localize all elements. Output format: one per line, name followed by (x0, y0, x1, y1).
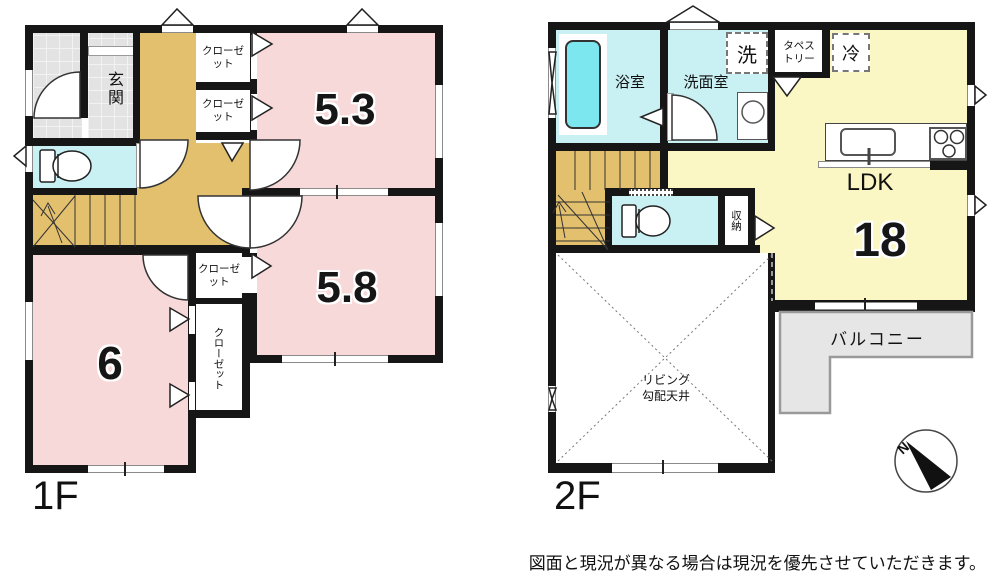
window-shutter-icon (549, 52, 556, 83)
closet-door-icon (252, 32, 272, 56)
room-5-3-size: 5.3 (280, 78, 410, 142)
tapestry-label: タペストリー (780, 34, 818, 72)
washroom-door-arc (672, 95, 717, 140)
storage-door-icon (755, 216, 774, 240)
stove-burners (935, 131, 964, 158)
ldk-size: 18 (845, 212, 915, 268)
toilet-door-arc (140, 140, 188, 188)
window-shutter-icon (975, 86, 986, 104)
void-ceiling-marks (558, 255, 772, 461)
closet-door-icon (252, 254, 271, 278)
sink-bowl (742, 101, 764, 123)
floor-label-2f: 2F (554, 474, 601, 519)
entrance-door-arc (34, 72, 80, 118)
washroom-label: 洗面室 (670, 70, 742, 92)
compass: N (894, 430, 957, 492)
storage-label: 収納 (726, 198, 747, 243)
tapestry-door-icon (773, 77, 801, 96)
entrance-label: 玄関 (98, 52, 128, 126)
ldk-label: LDK (830, 170, 910, 196)
closet-label: クローゼット (198, 93, 248, 129)
roof-vents (162, 6, 719, 25)
window-shutter-icon (549, 399, 556, 410)
window-shutter-icon (549, 388, 556, 399)
room58-door-arc (250, 196, 302, 248)
balcony-label: バルコニー (800, 326, 955, 348)
room-5-8-size: 5.8 (282, 256, 412, 320)
window-shutter-icon (549, 83, 556, 114)
toilet-vent-icon (14, 146, 26, 166)
roof-vent-icon (347, 9, 378, 25)
closet-door-icon (170, 308, 189, 331)
stairs-1f (33, 195, 135, 247)
closet-label: クローゼット (205, 322, 233, 394)
plan-symbols-overlay: N (0, 0, 1000, 586)
genkan-opening-icon (222, 143, 243, 161)
floor-plan-canvas: 洗 冷 (0, 0, 1000, 586)
room-6-size: 6 (70, 330, 150, 396)
room6-door-arc (143, 255, 188, 300)
bath-door-icon (641, 108, 663, 126)
toilet-fixture-2f (622, 205, 670, 237)
closet-door-icon (170, 384, 189, 407)
disclaimer-text: 図面と現況が異なる場合は現況を優先させていただきます。 (529, 549, 986, 574)
closet-door-icon (252, 96, 272, 120)
closet-label: クローゼット (197, 258, 241, 294)
toilet-fixture-1f (40, 150, 91, 182)
window-shutter-icon (975, 196, 986, 214)
closet-label: クローゼット (198, 40, 248, 76)
bathroom-label: 浴室 (600, 70, 660, 92)
floor-label-1f: 1F (32, 474, 79, 519)
hall-door-arc (198, 196, 250, 248)
roof-vent-icon (667, 6, 719, 22)
room53-door-arc (250, 140, 300, 190)
roof-vent-icon (162, 9, 193, 25)
void-label: リビング 勾配天井 (616, 372, 716, 406)
